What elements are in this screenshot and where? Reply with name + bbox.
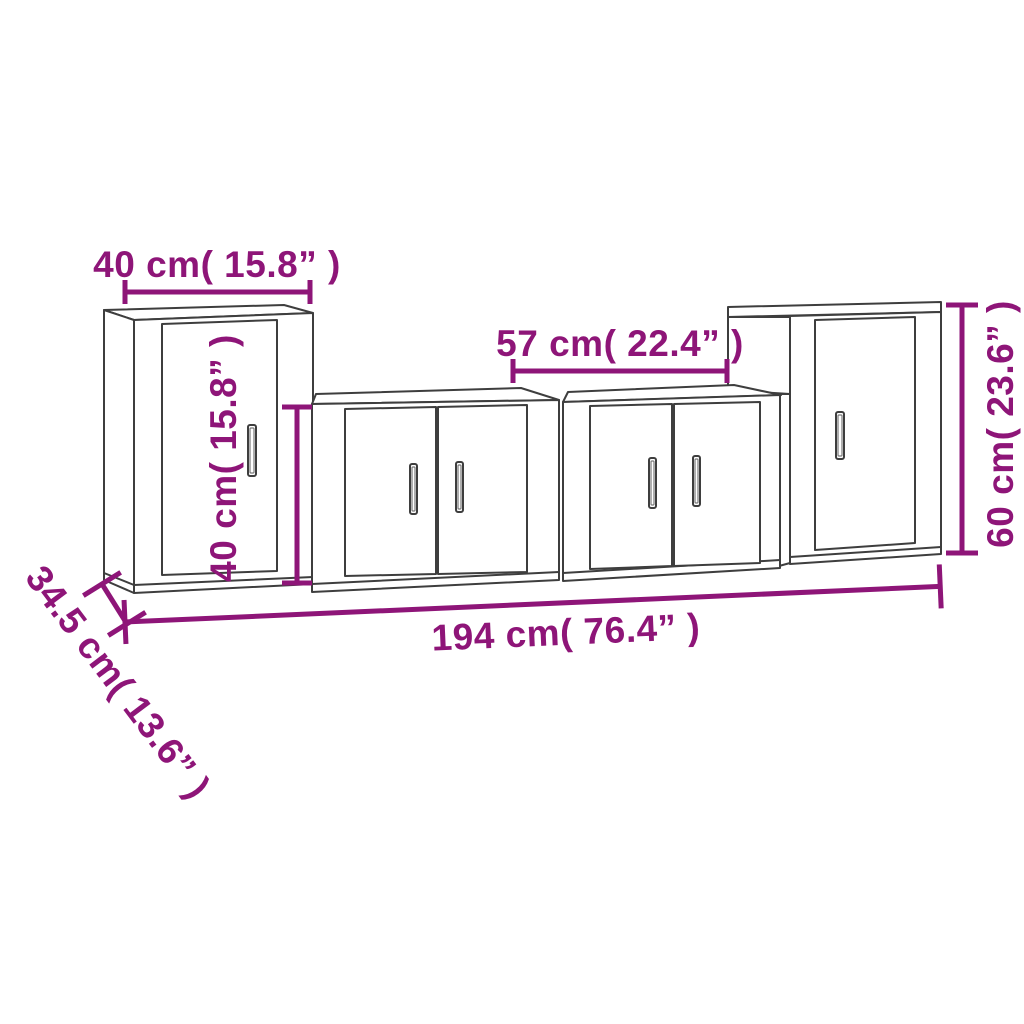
center-left-door-left — [345, 407, 436, 576]
dim-center-height-label: 40 cm( 15.8” ) — [203, 334, 244, 582]
dim-left-width-label: 40 cm( 15.8” ) — [93, 244, 341, 285]
center-left-door-handle-right — [456, 462, 463, 512]
dim-depth-label: 34.5 cm( 13.6” ) — [18, 558, 219, 806]
dim-right-height-label: 60 cm( 23.6” ) — [980, 300, 1021, 548]
center-right-door-right — [674, 402, 760, 566]
right-cabinet-door — [815, 317, 915, 550]
center-right-door-handle-left — [649, 458, 656, 508]
dimension-depth: 34.5 cm( 13.6” ) — [18, 558, 219, 806]
left-cabinet-door-handle — [248, 425, 256, 476]
left-cabinet-side-face — [104, 310, 134, 593]
dimension-right-height: 60 cm( 23.6” ) — [946, 300, 1021, 553]
dim-center-width-label: 57 cm( 22.4” ) — [496, 323, 744, 364]
center-left-cabinet — [312, 388, 559, 592]
dim-total-width-label: 194 cm( 76.4” ) — [431, 606, 701, 659]
diagram-canvas: 40 cm( 15.8” ) 57 cm( 22.4” ) 40 cm( 15.… — [0, 0, 1024, 1024]
center-left-door-right — [438, 405, 527, 574]
dimension-center-width: 57 cm( 22.4” ) — [496, 323, 744, 383]
dimension-left-width: 40 cm( 15.8” ) — [93, 244, 341, 304]
right-cabinet-door-handle — [836, 412, 844, 459]
dim-total-width-cap-end — [939, 564, 941, 608]
center-right-door-handle-right — [693, 456, 700, 506]
center-right-cabinet — [563, 385, 781, 581]
product-dimension-diagram: 40 cm( 15.8” ) 57 cm( 22.4” ) 40 cm( 15.… — [0, 0, 1024, 1024]
center-right-door-left — [590, 404, 672, 569]
center-left-door-handle-left — [410, 464, 417, 514]
